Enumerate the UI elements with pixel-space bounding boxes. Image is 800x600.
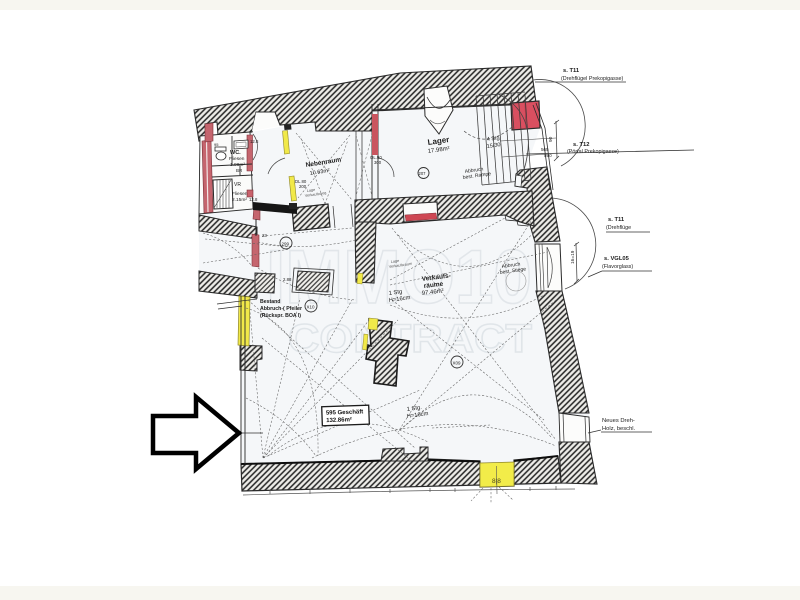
svg-text:12.8: 12.8 [250, 139, 259, 144]
svg-text:WC.: WC. [230, 150, 241, 156]
svg-text:X10: X10 [307, 305, 316, 310]
svg-text:Neues Dreh-: Neues Dreh- [602, 418, 635, 424]
svg-text:(Flavorglass): (Flavorglass) [602, 264, 633, 270]
svg-text:590: 590 [544, 153, 552, 158]
svg-text:23: 23 [262, 233, 267, 238]
svg-text:90: 90 [548, 136, 554, 142]
svg-text:VR: VR [234, 182, 241, 188]
svg-text:s. T11: s. T11 [608, 217, 625, 223]
svg-text:95: 95 [214, 142, 219, 147]
svg-text:2.88: 2.88 [283, 277, 292, 282]
svg-text:565: 565 [541, 147, 549, 152]
svg-text:X09: X09 [453, 361, 462, 366]
svg-text:(Drehflügel Prekopigasse): (Drehflügel Prekopigasse) [561, 76, 624, 82]
svg-text:16=19: 16=19 [570, 250, 576, 264]
svg-text:BR: BR [236, 168, 243, 173]
svg-text:12.8: 12.8 [249, 197, 258, 202]
svg-text:Fliesen: Fliesen [232, 191, 248, 197]
svg-text:(Rückspr. BOA I): (Rückspr. BOA I) [260, 313, 301, 319]
svg-text:CONTRACT: CONTRACT [288, 317, 532, 361]
svg-text:299: 299 [282, 242, 290, 247]
svg-text:Holz, beschl.: Holz, beschl. [602, 426, 636, 432]
svg-text:s. T12: s. T12 [573, 142, 589, 148]
svg-text:Abbruch-( Pfeiler: Abbruch-( Pfeiler [260, 306, 302, 312]
svg-text:207: 207 [419, 171, 427, 176]
svg-text:300: 300 [374, 160, 382, 165]
svg-text:132.86m²: 132.86m² [326, 416, 352, 424]
svg-text:(Drehflüge: (Drehflüge [606, 225, 631, 231]
svg-text:s. T11: s. T11 [563, 68, 580, 74]
svg-text:s. VGL05: s. VGL05 [604, 256, 630, 262]
svg-text:2.15m²: 2.15m² [232, 197, 247, 203]
svg-text:Bestand: Bestand [260, 299, 280, 305]
svg-text:Fliesen: Fliesen [229, 156, 245, 162]
